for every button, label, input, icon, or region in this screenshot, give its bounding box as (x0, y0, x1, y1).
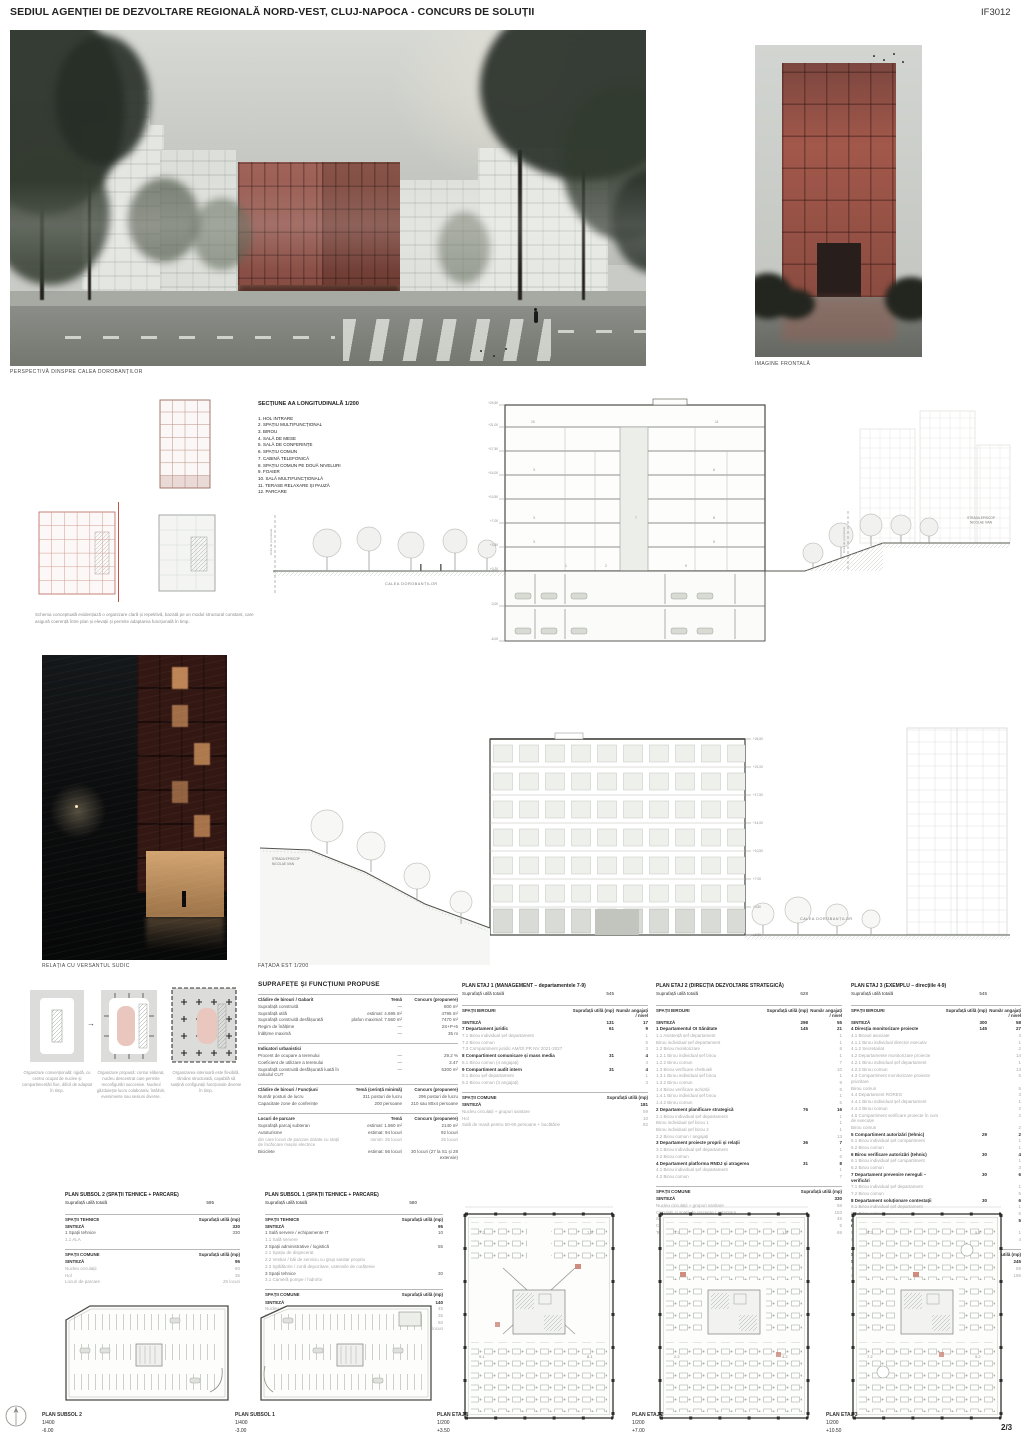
svg-text:8: 8 (713, 516, 715, 520)
table-row: 1.1 Sală servere (265, 1236, 443, 1243)
level-label: +3,50 (753, 905, 761, 909)
table-row: 3 Spații tehnice30 (265, 1270, 443, 1277)
table-row: 2.1 Spațiu de dispecerat (265, 1250, 443, 1257)
table-row: SINTEZĂ29855 (656, 1019, 842, 1026)
plan-etaj2-drawing: 1.2 1.3 2.2 4.2 (650, 1202, 818, 1430)
plan-etaj3-drawing: 4.2 5.1 7.2 9.2 (843, 1202, 1011, 1430)
table-row: SINTEZĂ95 (265, 1223, 443, 1230)
table-row: 7.2 Birou comun5 (851, 1190, 1021, 1197)
photo-night (42, 655, 227, 960)
table-row: Număr posturi de lucru311 posturi de luc… (258, 1094, 458, 1101)
table-header: SPAȚII TEHNICE Suprafață utilă (mp) (265, 1214, 443, 1224)
table-row: Suprafață construită desfășurată luată î… (258, 1066, 458, 1078)
table-row: 1 Sală servere / echipamente IT10 (265, 1230, 443, 1237)
pigeon (480, 350, 482, 352)
entry-code: IF3012 (981, 7, 1011, 18)
level-label: -6,00 (491, 637, 498, 641)
table-row: 9.2 Birou comun (3 angajați)3 (462, 1079, 648, 1086)
table-header: SPAȚII BIROURI Suprafață utilă (mp) Numă… (462, 1005, 648, 1020)
svg-text:7: 7 (635, 516, 637, 520)
table-row: din care locuri de parcare dotate cu sta… (258, 1136, 458, 1148)
table-row: 2.1 Birou individual șef departament1 (656, 1113, 842, 1120)
schema-plan-grey (155, 511, 219, 595)
svg-text:7.2: 7.2 (867, 1354, 873, 1359)
table-row: 1 Departamentul OI Sănătate14521 (656, 1026, 842, 1033)
plan-accent (939, 1352, 944, 1357)
svg-text:9: 9 (685, 564, 687, 568)
svg-text:NICOLAE IVAN: NICOLAE IVAN (272, 862, 295, 866)
table-row: Birou comun2 (851, 1124, 1021, 1131)
table-row: 4.1 Birou individual șef departament1 (656, 1167, 842, 1174)
table-body: Procent de ocupare a terenului—29.2 %Coe… (258, 1053, 458, 1079)
svg-text:4.2: 4.2 (782, 1354, 788, 1359)
page-title: SEDIUL AGENȚIEI DE DEZVOLTARE REGIONALĂ … (10, 6, 534, 18)
table-row: SINTEZĂ181 (462, 1102, 648, 1109)
table-header: Locuri de parcare Temă Concurs (propuner… (258, 1113, 458, 1123)
table-row: 4.1 Birouri asociate3 (851, 1032, 1021, 1039)
table-body: Număr posturi de lucru311 posturi de luc… (258, 1094, 458, 1107)
table-row: Locuri de parcare25 locuri (65, 1279, 240, 1286)
bird (893, 53, 895, 55)
table-header: SPAȚII COMUNE Suprafață utilă (mp) (265, 1289, 443, 1299)
level-label: ±0,00 (753, 933, 761, 937)
table-row: 4 Direcția monitorizare proiecte14527 (851, 1026, 1021, 1033)
svg-text:3: 3 (533, 468, 535, 472)
section-drawing: 101136 378 35 129 1212 limită de proprie (265, 393, 1015, 665)
table-row: Suprafață construită—800 m² (258, 1004, 458, 1011)
table-row: SINTEZĂ330 (65, 1223, 240, 1230)
plan-caption-etaj1: PLAN ETAJ 1 1/200 +3.50 (437, 1412, 469, 1435)
level-label: +17,50 (488, 447, 498, 451)
plan-caption-subsol1: PLAN SUBSOL 1 1/400 -3.00 (235, 1412, 275, 1435)
table-row: 7.2 Birou comun5 (462, 1039, 648, 1046)
table-row: 4.2.2 Birou comun13 (851, 1066, 1021, 1073)
table-body: SINTEZĂ951 Sală servere / echipamente IT… (265, 1223, 443, 1283)
table-row: 5 Compartiment autorizări (tehnic)292 (851, 1131, 1021, 1138)
table-row: 8.1 Birou comun (4 angajați)4 (462, 1059, 648, 1066)
svg-text:2.2: 2.2 (674, 1354, 680, 1359)
table-row: 2.2 Birou comun / angajați13 (656, 1133, 842, 1140)
table-total: Suprafață utilă totală 545 (462, 990, 648, 999)
table-row: Suprafață parcaj subteranestimat: 1.860 … (258, 1123, 458, 1130)
svg-text:7.2: 7.2 (479, 1230, 485, 1235)
svg-text:3: 3 (533, 516, 535, 520)
table-total: Suprafață utilă totală 545 (851, 990, 1021, 999)
table-row: 4.5 Compartiment verificare proiecte în … (851, 1112, 1021, 1124)
diagram-caption: Organizare propusă: contur eliberat, nuc… (96, 1070, 166, 1100)
bush (775, 289, 815, 319)
table-row: 4.2 Birou comun7 (656, 1174, 842, 1181)
table-row: Hol35 (65, 1272, 240, 1279)
table-row: 3.1 Birou individual șef departament1 (656, 1147, 842, 1154)
table-row: 4.2.1 Birou individual șef departament1 (851, 1059, 1021, 1066)
plan-accent (495, 1322, 500, 1327)
table-row: Suprafață construită desfășuratăplafon m… (258, 1017, 458, 1024)
level-label: +10,50 (753, 849, 763, 853)
table-row: Coeficient de utilizare a terenului—2.47 (258, 1059, 458, 1066)
pigeon (493, 355, 495, 357)
schema-elevation (152, 396, 218, 493)
table-header: SPAȚII COMUNE Suprafață utilă (mp) (462, 1092, 648, 1102)
table-row: Procent de ocupare a terenului—29.2 % (258, 1053, 458, 1060)
table-row: Birou individual șef departament1 (656, 1039, 842, 1046)
plan-etaj1-drawing: 7.2 7.3 9.1 8.1 (455, 1202, 623, 1430)
level-label: -3,00 (491, 602, 498, 606)
table-row: 4.2 Departamente monitorizare proiecte14 (851, 1053, 1021, 1060)
plan-caption-etaj3: PLAN ETAJ 3 1/200 +10.50 (826, 1412, 858, 1435)
table-plan-subsol2: PLAN SUBSOL 2 (SPAȚII TEHNICE + PARCARE)… (65, 1192, 240, 1286)
table-row: 7.3 Compartiment juridic AM/OI PR NV 202… (462, 1046, 648, 1053)
table-body: SINTEZĂ181Nucleu circulații + grupuri sa… (462, 1102, 648, 1129)
svg-text:4.2: 4.2 (867, 1230, 873, 1235)
table-row: 2.3 Spălătorie / zonă depozitare, ustens… (265, 1263, 443, 1270)
table-header: Clădire de birouri / Funcțiuni Temă (cer… (258, 1084, 458, 1094)
level-label: +10,50 (488, 495, 498, 499)
table-row: 3.1 Cameră pompe / hidrofor (265, 1277, 443, 1284)
table-row: 8 Compartiment comunicare și mass media3… (462, 1053, 648, 1060)
table-body: SINTEZĂ3301 Spații tehnice3301.1 ALA (65, 1223, 240, 1243)
svg-text:9.2: 9.2 (975, 1354, 981, 1359)
diagram-flexible (170, 986, 238, 1064)
plan-subsol1-drawing (253, 1300, 438, 1412)
table-row: 3 Departament proiecte proprii și relați… (656, 1140, 842, 1147)
table-suprafete: SUPRAFEȚE ȘI FUNCȚIUNI PROPUSE Clădire d… (258, 981, 458, 1161)
bird (873, 55, 875, 57)
table-header: Indicatori urbanistici (258, 1043, 458, 1053)
table-row: 4.3 Compartiment monitorizare proiecte p… (851, 1073, 1021, 1085)
table-row: Suprafață utilăestimat: 4.695 m²4795 m² (258, 1010, 458, 1017)
street-label-episcop: STRADA EPISCOP (967, 516, 995, 520)
competition-board: SEDIUL AGENȚIEI DE DEZVOLTARE REGIONALĂ … (0, 0, 1024, 1447)
svg-text:8.1: 8.1 (587, 1354, 593, 1359)
table-row: 1.2.2 Birou comun7 (656, 1059, 842, 1066)
page-number: 2/3 (1001, 1423, 1012, 1432)
table-row: Nucleu circulații + grupuri sanitare59 (462, 1108, 648, 1115)
table-row: 1.3.2 Birou comun9 (656, 1079, 842, 1086)
plan-caption-etaj2: PLAN ETAJ 2 1/200 +7.00 (632, 1412, 664, 1435)
table-row: 1.2.1 Birou individual șef birou1 (656, 1053, 842, 1060)
plan-accent (913, 1272, 919, 1277)
table-row: SINTEZĂ30058 (851, 1019, 1021, 1026)
caption-frontal: IMAGINE FRONTALĂ (755, 361, 810, 367)
table-row: 1.4.2 Birou comun5 (656, 1100, 842, 1107)
table-row: 9.1 Birou șef departament1 (462, 1073, 648, 1080)
table-row: 2.2 Vestiar / băi de serviciu cu grup sa… (265, 1257, 443, 1264)
table-body: Suprafață parcaj subteranestimat: 1.860 … (258, 1123, 458, 1161)
table-title: SUPRAFEȚE ȘI FUNCȚIUNI PROPUSE (258, 981, 458, 988)
table-header: Clădire de birouri / Gabarit Temă Concur… (258, 994, 458, 1004)
table-row: Birou individual șef birou 21 (656, 1127, 842, 1134)
table-row: 2 Spații administrative / logistică55 (265, 1243, 443, 1250)
table-header: SPAȚII TEHNICE Suprafață utilă (mp) (65, 1214, 240, 1224)
table-row: 9 Compartiment audit intern314 (462, 1066, 648, 1073)
table-row: 7 Departament juridic619 (462, 1026, 648, 1033)
table-row: 1.4.1 Birou individual șef birou1 (656, 1093, 842, 1100)
level-label: +14,00 (488, 471, 498, 475)
table-row: 2 Departament planificare strategică7616 (656, 1106, 842, 1113)
level-label: +24,50 (753, 737, 763, 741)
table-header: SPAȚII BIROURI Suprafață utilă (mp) Numă… (656, 1005, 842, 1020)
table-header: SPAȚII COMUNE Suprafață utilă (mp) (656, 1186, 842, 1196)
table-row: 4.4.2 Birou comun2 (851, 1105, 1021, 1112)
level-label: +17,50 (753, 793, 763, 797)
street-label-episcop: STRADA EPISCOP (272, 857, 300, 861)
plan-caption-subsol2: PLAN SUBSOL 2 1/400 -6.00 (42, 1412, 82, 1435)
crosswalk (343, 319, 551, 361)
table-row: Bicicleteestimat: 56 locuri30 locuri (27… (258, 1149, 458, 1161)
table-row: 3.2 Birou comun6 (656, 1153, 842, 1160)
building-entrance (817, 243, 861, 297)
pigeon (505, 348, 507, 350)
table-row: 4.4 Departament ROREG3 (851, 1092, 1021, 1099)
street-label-calea-dorobantilor: CALEA DOROBANȚILOR (800, 917, 853, 921)
table-row: Înălțime maximă—35 m (258, 1030, 458, 1037)
arrow-icon: → (87, 1019, 95, 1028)
table-row: Regim de înălțime—2S+P+6 (258, 1024, 458, 1031)
table-row: Hol10 (462, 1115, 648, 1122)
table-row: Capacitate zone de conferințe200 persoan… (258, 1101, 458, 1108)
diagram-caption: Organizarea interioară este flexibilă, r… (170, 1070, 242, 1094)
diagram-caption: Organizare convențională: rigidă, cu cen… (20, 1070, 94, 1094)
table-row: 1 Spații tehnice330 (65, 1230, 240, 1237)
render-perspective (10, 30, 646, 366)
tree (55, 35, 150, 165)
table-row: 6 Birou verificare autorizări (tehnic)30… (851, 1151, 1021, 1158)
svg-text:5: 5 (713, 540, 715, 544)
level-label: +24,50 (488, 401, 498, 405)
svg-text:1.3: 1.3 (782, 1230, 788, 1235)
table-row: 1.1 Asistență șef departament1 (656, 1032, 842, 1039)
plan-accent (680, 1272, 686, 1277)
table-header: SPAȚII BIROURI Suprafață utilă (mp) Numă… (851, 1005, 1021, 1020)
table-total: Suprafață utilă totală 595 (65, 1199, 240, 1208)
table-row: 5.1 Birou individual șef compartiment1 (851, 1138, 1021, 1145)
north-arrow-icon (4, 1404, 28, 1428)
table-row: 1.3.1 Birou individual șef birou1 (656, 1073, 842, 1080)
table-row: SINTEZĂ95 (65, 1259, 240, 1266)
table-row: 1.4 Birou verificare achiziții6 (656, 1086, 842, 1093)
table-row: 4.1.2 Secretariat2 (851, 1046, 1021, 1053)
svg-text:6: 6 (713, 468, 715, 472)
table-row: Sală de masă pentru 50-60 persoane + buc… (462, 1122, 648, 1129)
concept-text: Schema conceptuală evidențiază o organiz… (35, 612, 267, 626)
bird (883, 59, 885, 61)
table-row: 7.1 Birou individual șef departament1 (851, 1184, 1021, 1191)
caption-fatada: FAȚADA EST 1/200 (258, 963, 309, 969)
svg-text:11: 11 (715, 420, 719, 424)
table-body: SINTEZĂ131177 Departament juridic6197.1 … (462, 1019, 648, 1086)
render-frontal (755, 45, 922, 357)
table-row: 1.3 Birou verificare cheltuieli10 (656, 1066, 842, 1073)
svg-text:NICOLAE IVAN: NICOLAE IVAN (970, 521, 993, 525)
table-row: 7.1 Birou individual șef departament1 (462, 1032, 648, 1039)
table-row: 4.4.1 Birou individual șef departament1 (851, 1099, 1021, 1106)
table-row: 1.1 ALA (65, 1236, 240, 1243)
caption-perspective: PERSPECTIVĂ DINSPRE CALEA DOROBANȚILOR (10, 369, 143, 375)
level-label: +0,20 (490, 567, 498, 571)
caption-night: RELAȚIA CU VERSANTUL SUDIC (42, 963, 130, 969)
table-row: 4 Departament platforma RNDJ și atragere… (656, 1160, 842, 1167)
table-row: 4.1.1 Birou individual director executiv… (851, 1039, 1021, 1046)
table-row: 5.2 Birou comun1 (851, 1144, 1021, 1151)
section-cut-line (118, 502, 119, 602)
table-plan-etaj2: PLAN ETAJ 2 (DIRECȚIA DEZVOLTARE STRATEG… (656, 983, 842, 1236)
table-total: Suprafață utilă totală 580 (265, 1199, 443, 1208)
table-row: Birou comun5 (851, 1085, 1021, 1092)
table-row: 7 Departament prevenire nereguli – verif… (851, 1171, 1021, 1183)
svg-text:2: 2 (605, 564, 607, 568)
table-row: 1.2 Birou monitorizare8 (656, 1046, 842, 1053)
property-line-label: limită de proprietate (269, 528, 273, 555)
table-body: Suprafață construită—800 m²Suprafață uti… (258, 1004, 458, 1038)
plan-accent (575, 1264, 581, 1269)
table-plan-etaj1: PLAN ETAJ 1 (MANAGEMENT – departamentele… (462, 983, 648, 1129)
table-total: Suprafață utilă totală 628 (656, 990, 842, 999)
table-row: Birou individual șef birou 11 (656, 1120, 842, 1127)
table-body: SINTEZĂ298551 Departamentul OI Sănătate1… (656, 1019, 842, 1180)
svg-text:1.2: 1.2 (674, 1230, 680, 1235)
svg-text:3: 3 (533, 540, 535, 544)
table-header: SPAȚII COMUNE Suprafață utilă (mp) (65, 1249, 240, 1259)
table-row: Nucleu circulații60 (65, 1265, 240, 1272)
diagram-conventional (30, 990, 84, 1062)
table-row: 6.2 Birou comun3 (851, 1165, 1021, 1172)
street-label-calea-dorobantilor: CALEA DOROBANȚILOR (385, 582, 438, 586)
level-label: +3,50 (490, 543, 498, 547)
bird (902, 61, 904, 63)
plan-subsol2-drawing (60, 1300, 235, 1412)
table-body: SINTEZĂ95Nucleu circulații60Hol35Locuri … (65, 1259, 240, 1286)
level-label: +14,00 (753, 821, 763, 825)
level-label: +21,00 (753, 765, 763, 769)
table-row: SINTEZĂ13117 (462, 1019, 648, 1026)
table-row: Autoturismeestimat: 94 locuri92 locuri (258, 1130, 458, 1137)
schema-plan-structural (35, 506, 123, 600)
diagram-proposed (101, 990, 157, 1062)
svg-text:1: 1 (565, 564, 567, 568)
svg-text:5.1: 5.1 (975, 1230, 981, 1235)
svg-text:10: 10 (531, 420, 535, 424)
level-label: +21,00 (488, 423, 498, 427)
svg-text:7.3: 7.3 (587, 1230, 593, 1235)
facade-drawing: +24,50 +21,00 +17,50 +14,00 +10,50 +7,00… (255, 700, 1015, 965)
level-label: +7,00 (490, 519, 498, 523)
table-row: 6.1 Birou individual șef compartiment1 (851, 1158, 1021, 1165)
level-label: +7,00 (753, 877, 761, 881)
property-line-label: limită de proprietate (842, 526, 846, 553)
plan-accent (776, 1352, 781, 1357)
svg-text:9.1: 9.1 (479, 1354, 485, 1359)
